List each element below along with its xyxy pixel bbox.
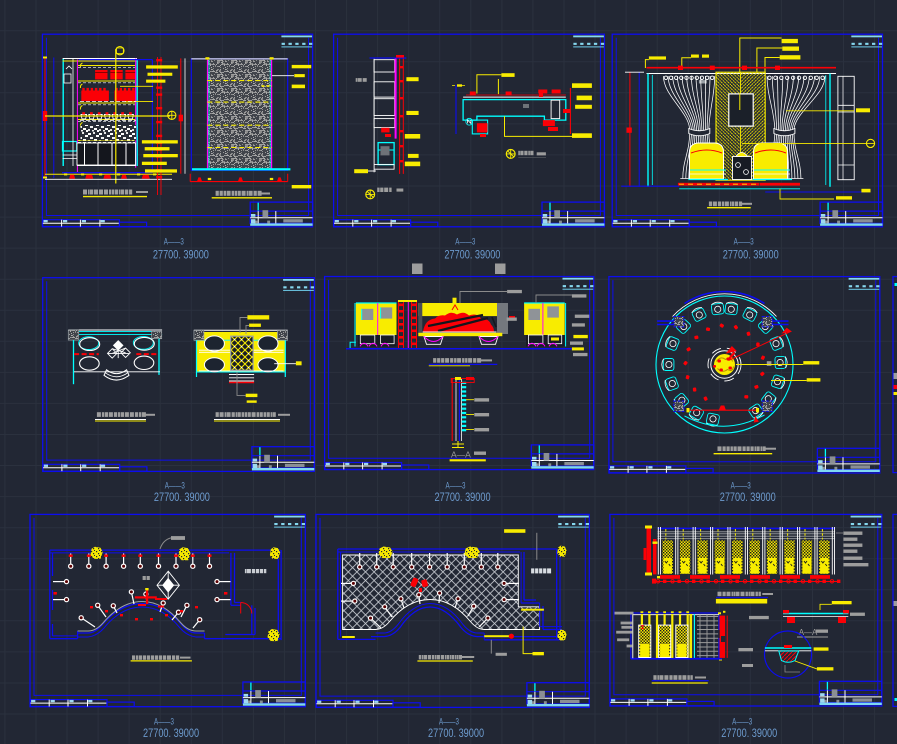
- svg-text:27700. 39000: 27700. 39000: [153, 250, 209, 262]
- svg-text:27700. 39000: 27700. 39000: [143, 728, 199, 740]
- svg-text:27700. 39000: 27700. 39000: [721, 728, 777, 740]
- svg-text:27700. 39000: 27700. 39000: [435, 492, 491, 504]
- svg-text:A——3: A——3: [165, 481, 185, 491]
- svg-text:A——3: A——3: [455, 237, 475, 247]
- svg-text:27700. 39000: 27700. 39000: [444, 250, 500, 262]
- svg-text:27700. 39000: 27700. 39000: [428, 728, 484, 740]
- svg-text:A——3: A——3: [154, 716, 174, 726]
- svg-text:A——3: A——3: [439, 716, 459, 726]
- svg-text:27700. 39000: 27700. 39000: [154, 492, 210, 504]
- svg-text:A——3: A——3: [734, 237, 754, 247]
- svg-text:A——3: A——3: [731, 481, 751, 491]
- svg-text:A——3: A——3: [445, 481, 465, 491]
- svg-text:A——3: A——3: [164, 237, 184, 247]
- svg-text:A—A: A—A: [451, 450, 471, 460]
- svg-text:27700. 39000: 27700. 39000: [720, 492, 776, 504]
- svg-text:A——3: A——3: [732, 716, 752, 726]
- svg-text:27700. 39000: 27700. 39000: [723, 250, 779, 262]
